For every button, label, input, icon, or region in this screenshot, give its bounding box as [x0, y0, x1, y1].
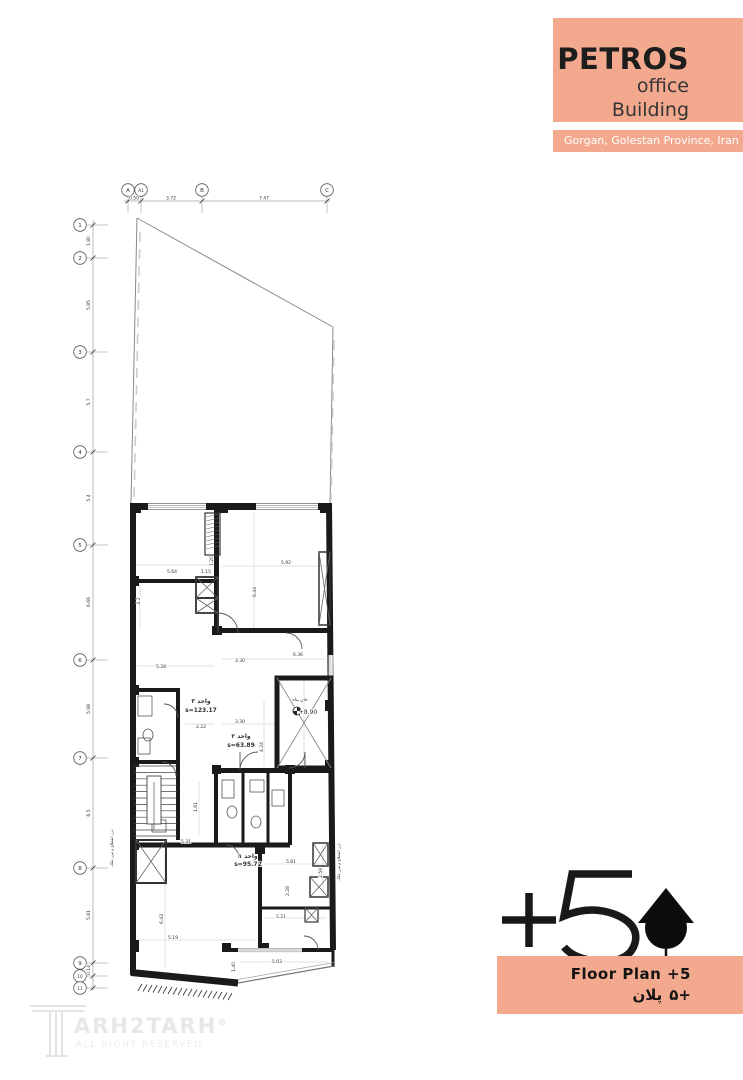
grid-label: C	[325, 188, 329, 194]
dim-label: 3.30	[235, 719, 245, 725]
registered-mark: ®	[217, 1018, 228, 1028]
boundary-hatch	[148, 985, 152, 992]
boundary-hatch	[208, 991, 212, 998]
floor-plan-label-en: Floor Plan +5	[497, 965, 691, 983]
level-five-glyph	[564, 874, 636, 961]
boundary-hatch	[163, 987, 167, 994]
grid-label: 1	[78, 223, 82, 229]
staircase	[134, 766, 177, 836]
dim-label: 5.4	[86, 494, 92, 501]
dim-label: 6.43	[159, 914, 165, 924]
floor-plan-label-fa-word: پلان	[632, 986, 662, 1004]
dim-label: 5.28	[156, 664, 166, 670]
annotation-label: درز انقطاع و مرز ملک	[109, 829, 114, 866]
dim-label: 5.85	[86, 300, 92, 310]
floor-plan-label-fa-num: ۵+	[669, 986, 691, 1004]
watermark: ARH2TARH® ALL RIGHT RESERVED	[28, 1000, 258, 1070]
project-name: PETROS	[553, 45, 689, 74]
grid-label: 6	[78, 658, 82, 664]
dim-label: 3.72	[166, 196, 176, 202]
dim-label: 6.36	[293, 652, 303, 658]
north-arrow-icon	[638, 888, 694, 956]
dim-label: 1.80	[86, 236, 92, 246]
grid-label: 11	[77, 986, 83, 991]
boundary-hatch	[143, 985, 147, 992]
room-label: واحد ۳	[191, 698, 211, 705]
dim-label: 6.5	[86, 809, 92, 816]
dim-label: 7.47	[259, 196, 269, 202]
dim-label: 0.50	[129, 196, 139, 202]
dim-label: 2.22	[196, 724, 206, 730]
grid-label: 9	[78, 961, 82, 967]
dim-label: 0.14	[86, 965, 92, 975]
dim-label: 5.98	[86, 704, 92, 714]
dim-label: 4.2	[136, 597, 142, 604]
floor-level-graphic	[480, 858, 743, 970]
dim-label: 4.24	[259, 742, 265, 752]
dim-label: 2.28	[285, 886, 291, 896]
dim-label: 1.15	[201, 569, 211, 575]
watermark-brand: ARH2TARH®	[74, 1014, 228, 1038]
boundary-hatch	[193, 990, 197, 997]
grid-label: 3	[78, 350, 82, 356]
boundary-hatch	[223, 993, 227, 1000]
boundary-hatch	[228, 993, 232, 1000]
dim-label: 5.92	[281, 560, 291, 566]
grid-label: A	[126, 188, 130, 194]
watermark-tagline: ALL RIGHT RESERVED	[76, 1040, 203, 1050]
room-label: s=123.17	[185, 707, 217, 714]
title-block: PETROS office Building	[553, 18, 743, 122]
boundary-hatch	[218, 992, 222, 999]
project-subtitle-building: Building	[553, 98, 689, 122]
dim-label: 1.20	[209, 556, 215, 566]
room-label: s=95.72	[234, 861, 262, 868]
boundary-hatch	[168, 987, 172, 994]
balcony-edge	[238, 963, 334, 984]
drawing-sheet: AA1BC0.503.727.4712345678910111.805.855.…	[0, 0, 743, 1080]
room-label: واحد ۱	[238, 853, 258, 860]
annotation-label: درز انقطاع و مرز ملک	[336, 843, 341, 880]
property-boundary	[131, 218, 334, 503]
grid-label: 4	[78, 450, 82, 456]
dim-label: 5.21	[276, 914, 286, 920]
dim-label: 1.61	[193, 802, 199, 812]
dim-label: 5.19	[168, 935, 178, 941]
grid-label: 7	[78, 756, 82, 762]
boundary-hatch	[173, 988, 177, 995]
dim-label: 3.30	[235, 658, 245, 664]
boundary-hatch	[183, 989, 187, 996]
level-plus-glyph	[502, 893, 556, 947]
boundary-hatch	[203, 991, 207, 998]
boundary-hatch	[188, 989, 192, 996]
annotation-label: +8.90	[299, 709, 318, 716]
dim-label: 5.31	[181, 839, 191, 845]
floor-plan-label-fa: پلان ۵+	[497, 986, 691, 1004]
dim-label: 6.44	[252, 587, 258, 597]
dim-label: 5.7	[86, 398, 92, 405]
dim-label: 5.81	[86, 910, 92, 920]
project-subtitle-office: office	[553, 74, 689, 98]
annotation-label: جان پناه	[292, 698, 307, 703]
dim-label: 1.40	[231, 962, 237, 972]
grid-label: 2	[78, 256, 82, 262]
room-label: واحد ۲	[231, 733, 251, 740]
footer-bar: Floor Plan +5 پلان ۵+	[497, 956, 743, 1014]
boundary-hatch	[213, 992, 217, 999]
grid-label: B	[200, 188, 204, 194]
dim-label: 2.59	[318, 868, 324, 878]
dim-label: 5.81	[286, 859, 296, 865]
location-bar: Gorgan, Golestan Province, Iran	[553, 130, 743, 152]
dim-label: 5.03	[272, 959, 282, 965]
grid-label: A1	[138, 188, 144, 193]
dim-label: 5.64	[167, 569, 177, 575]
boundary-hatch	[158, 986, 162, 993]
watermark-brand-text: ARH2TARH	[74, 1014, 217, 1038]
dim-label: 6.66	[86, 597, 92, 607]
grid-label: 10	[77, 974, 83, 979]
boundary-hatch	[138, 984, 142, 991]
room-label: s=63.89	[227, 742, 255, 749]
boundary-hatch	[178, 988, 182, 995]
grid-label: 5	[78, 543, 82, 549]
structural-columns	[131, 503, 333, 952]
boundary-hatch	[153, 986, 157, 993]
boundary-hatch	[198, 990, 202, 997]
grid-label: 8	[78, 866, 82, 872]
